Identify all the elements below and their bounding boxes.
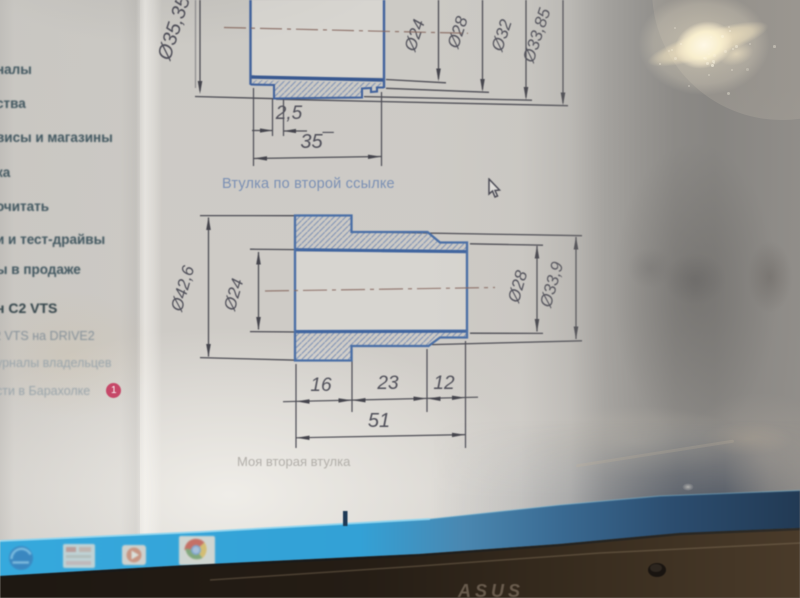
svg-text:Ø24: Ø24 [400, 17, 428, 54]
svg-text:Ø24: Ø24 [220, 276, 247, 313]
svg-text:51: 51 [368, 410, 390, 432]
svg-text:2,5: 2,5 [275, 103, 303, 124]
svg-text:23: 23 [376, 373, 399, 394]
svg-text:ASUS: ASUS [457, 581, 524, 598]
svg-text:Ø42,6: Ø42,6 [167, 263, 198, 314]
svg-text:35¯: 35¯ [300, 131, 334, 153]
svg-text:Ø35,35: Ø35,35 [153, 0, 195, 64]
svg-text:16: 16 [310, 375, 332, 396]
